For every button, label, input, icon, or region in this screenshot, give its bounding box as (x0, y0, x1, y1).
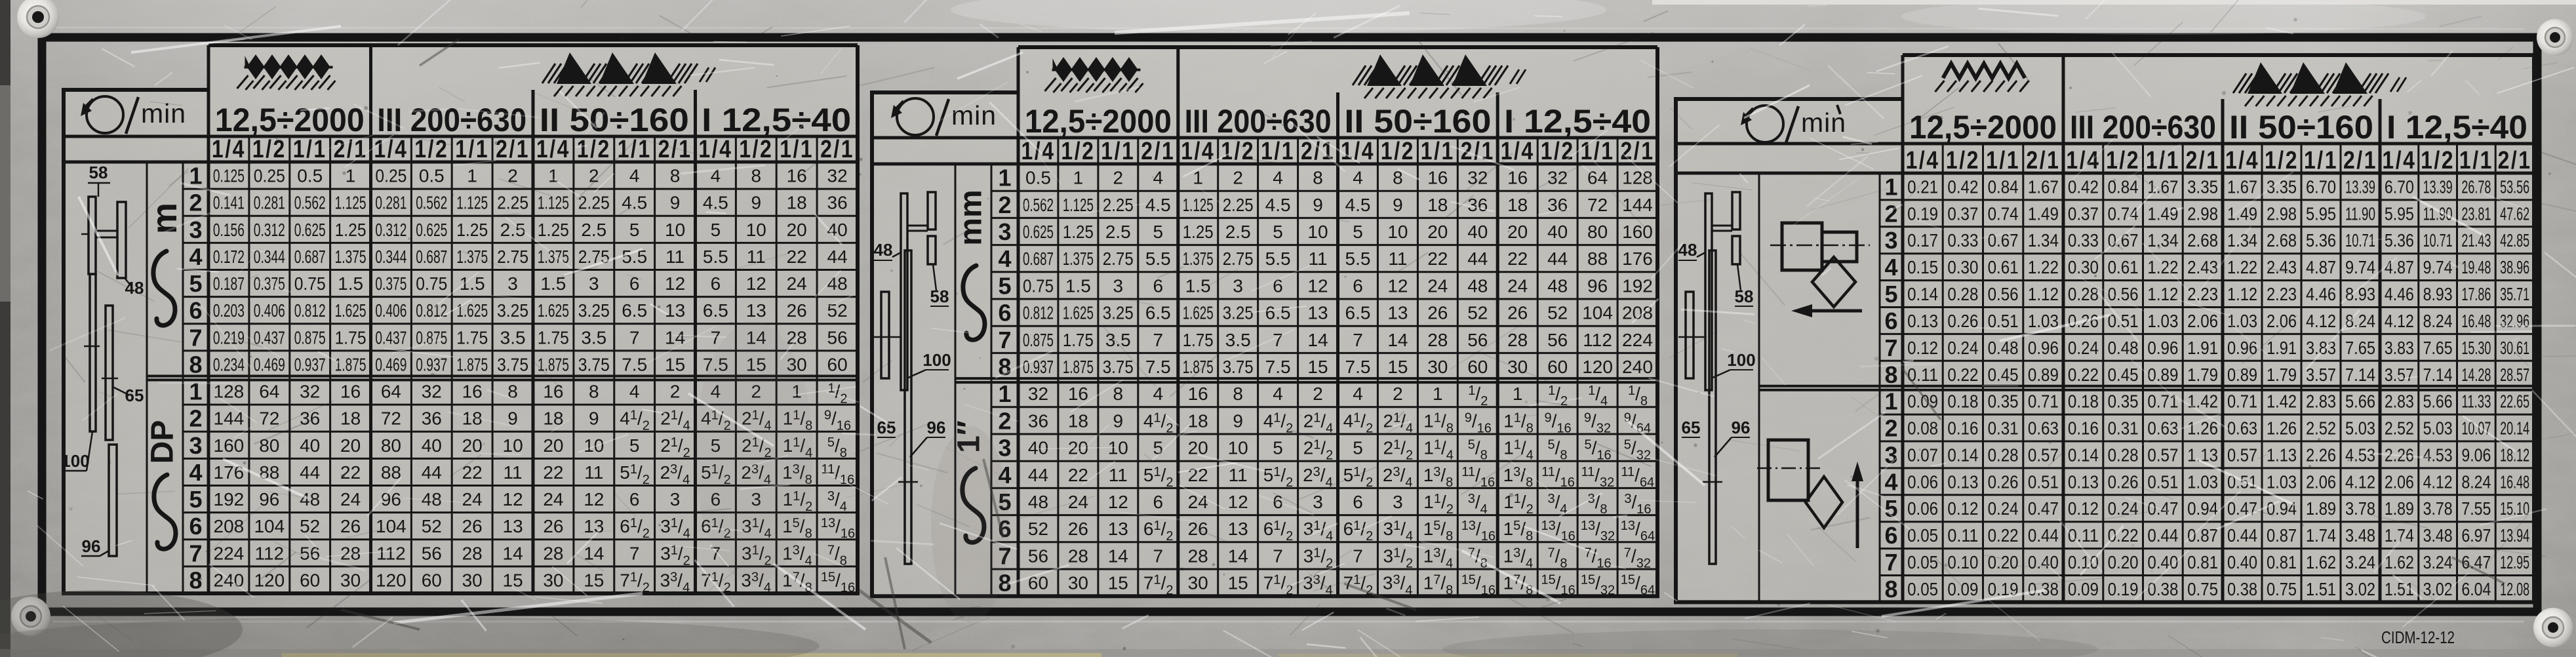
svg-text:22.65: 22.65 (2500, 391, 2529, 412)
svg-text:176: 176 (1622, 249, 1653, 269)
svg-text:2/1: 2/1 (2498, 147, 2532, 174)
svg-text:0.24: 0.24 (2068, 338, 2099, 358)
svg-text:3.48: 3.48 (2345, 525, 2375, 546)
svg-text:5.66: 5.66 (2345, 391, 2375, 412)
svg-text:1.79: 1.79 (2267, 365, 2297, 385)
svg-text:65: 65 (1682, 418, 1701, 437)
svg-text:0.312: 0.312 (254, 220, 285, 240)
svg-text:38.96: 38.96 (2500, 257, 2529, 277)
svg-text:0.375: 0.375 (254, 273, 285, 294)
svg-text:64: 64 (259, 382, 279, 402)
svg-text:20: 20 (787, 220, 807, 240)
svg-text:4: 4 (629, 166, 640, 186)
svg-text:0.37: 0.37 (2068, 203, 2099, 224)
svg-text:0.344: 0.344 (254, 247, 285, 267)
svg-text:44: 44 (1547, 249, 1568, 269)
svg-text:5: 5 (1884, 281, 1897, 308)
svg-text:1.22: 1.22 (2147, 257, 2178, 277)
svg-text:I 12,5÷40: I 12,5÷40 (2387, 109, 2527, 146)
svg-text:7: 7 (189, 324, 202, 351)
svg-text:6.04: 6.04 (2461, 579, 2491, 599)
svg-text:min: min (951, 100, 997, 130)
svg-text:32: 32 (827, 166, 848, 186)
svg-text:26: 26 (1427, 303, 1448, 323)
svg-text:2.06: 2.06 (2385, 471, 2414, 492)
svg-text:24: 24 (787, 273, 807, 294)
svg-text:0.51: 0.51 (2147, 471, 2178, 492)
svg-text:11: 11 (665, 247, 684, 267)
svg-text:9.06: 9.06 (2461, 445, 2491, 466)
svg-text:7: 7 (1273, 330, 1283, 350)
svg-text:1.625: 1.625 (335, 300, 367, 321)
svg-text:II 50÷160: II 50÷160 (540, 102, 689, 138)
svg-text:7: 7 (1353, 546, 1363, 566)
svg-text:160: 160 (214, 435, 245, 456)
svg-text:2.5: 2.5 (1225, 222, 1251, 242)
svg-text:52: 52 (300, 516, 320, 536)
svg-text:0.56: 0.56 (1988, 284, 2019, 304)
svg-text:1.375: 1.375 (538, 247, 569, 267)
svg-text:4.12: 4.12 (2423, 471, 2453, 492)
svg-text:0.28: 0.28 (2068, 284, 2099, 304)
svg-text:20: 20 (340, 435, 361, 456)
svg-text:1.03: 1.03 (2147, 311, 2178, 331)
svg-text:mm: mm (954, 189, 989, 245)
svg-text:0.937: 0.937 (1023, 357, 1054, 377)
svg-text:4.5: 4.5 (622, 193, 647, 213)
svg-text:24: 24 (462, 489, 483, 509)
svg-text:10: 10 (503, 435, 523, 456)
svg-text:5.5: 5.5 (703, 247, 728, 267)
svg-text:2.75: 2.75 (1103, 249, 1134, 269)
svg-text:2.25: 2.25 (578, 193, 610, 213)
svg-text:1.75: 1.75 (1063, 330, 1094, 350)
svg-text:0.26: 0.26 (1988, 471, 2019, 492)
svg-text:0.44: 0.44 (2227, 525, 2257, 546)
svg-text:0.19: 0.19 (2108, 579, 2139, 599)
svg-text:112: 112 (254, 543, 284, 563)
svg-text:0.937: 0.937 (294, 354, 326, 374)
svg-text:47.62: 47.62 (2500, 203, 2529, 224)
svg-text:0.30: 0.30 (1947, 257, 1978, 277)
svg-text:1/4: 1/4 (2066, 147, 2100, 174)
svg-text:9: 9 (670, 193, 681, 213)
svg-text:3.24: 3.24 (2423, 552, 2453, 572)
svg-text:III 200÷630: III 200÷630 (2070, 109, 2216, 146)
svg-text:4.53: 4.53 (2345, 445, 2375, 466)
svg-text:6.5: 6.5 (1265, 303, 1291, 323)
svg-text:2.68: 2.68 (2267, 230, 2297, 250)
svg-text:26: 26 (787, 300, 807, 321)
svg-text:4: 4 (189, 459, 202, 486)
svg-text:3.75: 3.75 (497, 354, 528, 374)
svg-text:44: 44 (1028, 465, 1048, 485)
svg-text:13.39: 13.39 (2345, 176, 2375, 197)
svg-text:2.83: 2.83 (2306, 391, 2336, 412)
svg-text:1.51: 1.51 (2306, 579, 2336, 599)
svg-text:0.18: 0.18 (2068, 391, 2099, 412)
svg-text:7: 7 (189, 540, 202, 567)
svg-text:0.406: 0.406 (375, 300, 406, 321)
svg-text:0.437: 0.437 (375, 327, 406, 348)
svg-text:0.08: 0.08 (1907, 418, 1938, 439)
svg-text:10.71: 10.71 (2423, 230, 2453, 250)
svg-text:120: 120 (376, 570, 406, 590)
svg-text:0.187: 0.187 (213, 273, 245, 294)
svg-text:0.61: 0.61 (2108, 257, 2139, 277)
svg-text:2/1: 2/1 (820, 136, 854, 163)
svg-text:DP: DP (146, 420, 180, 464)
svg-text:3.75: 3.75 (578, 354, 610, 374)
svg-text:1.25: 1.25 (538, 220, 569, 240)
svg-text:14: 14 (1108, 546, 1128, 566)
svg-text:14: 14 (1228, 546, 1248, 566)
svg-text:35.71: 35.71 (2500, 284, 2529, 304)
svg-text:24: 24 (1507, 275, 1528, 296)
svg-text:14: 14 (1387, 330, 1408, 350)
svg-text:9.74: 9.74 (2345, 257, 2375, 277)
svg-text:3: 3 (1113, 275, 1124, 296)
svg-text:0.12: 0.12 (1947, 498, 1978, 519)
svg-text:6: 6 (998, 300, 1011, 327)
svg-text:48: 48 (1028, 492, 1048, 512)
svg-text:1: 1 (998, 165, 1011, 191)
svg-text:0.22: 0.22 (1988, 525, 2019, 546)
svg-text:80: 80 (381, 435, 401, 456)
svg-text:24: 24 (543, 489, 563, 509)
svg-text:14: 14 (1307, 330, 1328, 350)
svg-text:1.375: 1.375 (456, 247, 488, 267)
svg-text:2/1: 2/1 (658, 136, 692, 163)
svg-text:48: 48 (874, 240, 893, 260)
svg-text:1/1: 1/1 (1581, 138, 1615, 165)
svg-text:4: 4 (1273, 168, 1283, 188)
svg-text:13: 13 (746, 300, 766, 321)
svg-text:60: 60 (300, 570, 320, 590)
svg-text:20.14: 20.14 (2500, 418, 2529, 439)
svg-text:30: 30 (1507, 357, 1528, 377)
svg-text:2.98: 2.98 (2187, 203, 2218, 224)
svg-text:2/1: 2/1 (1141, 138, 1175, 165)
svg-text:7: 7 (1273, 546, 1283, 566)
svg-text:0.406: 0.406 (254, 300, 285, 321)
svg-text:96: 96 (1587, 275, 1608, 296)
svg-text:208: 208 (1622, 303, 1653, 323)
svg-text:0.625: 0.625 (294, 220, 326, 240)
svg-text:32: 32 (1467, 168, 1488, 188)
svg-text:10: 10 (584, 435, 604, 456)
svg-text:1/1: 1/1 (455, 136, 489, 163)
svg-text:1.75: 1.75 (1183, 330, 1214, 350)
svg-text:2: 2 (189, 189, 202, 216)
svg-text:5.95: 5.95 (2385, 203, 2414, 224)
svg-text:2.06: 2.06 (2267, 311, 2297, 331)
svg-text:1.89: 1.89 (2306, 498, 2336, 519)
svg-text:28: 28 (1507, 330, 1528, 350)
svg-text:44: 44 (300, 462, 320, 483)
svg-text:0.22: 0.22 (2068, 365, 2099, 385)
svg-text:4.5: 4.5 (1345, 195, 1371, 215)
svg-text:0.562: 0.562 (294, 193, 326, 213)
svg-text:40: 40 (1547, 222, 1568, 242)
svg-text:21.43: 21.43 (2461, 230, 2491, 250)
svg-text:1.625: 1.625 (1063, 303, 1094, 323)
svg-text:0.937: 0.937 (416, 354, 447, 374)
svg-text:28: 28 (543, 543, 563, 563)
svg-text:11.90: 11.90 (2345, 203, 2375, 224)
svg-text:2: 2 (1884, 415, 1897, 442)
svg-text:1.49: 1.49 (2147, 203, 2178, 224)
svg-text:0.25: 0.25 (254, 166, 285, 186)
svg-text:1.75: 1.75 (538, 327, 569, 348)
svg-text:96: 96 (927, 418, 946, 437)
svg-text:4.46: 4.46 (2385, 284, 2414, 304)
svg-text:15: 15 (1228, 573, 1248, 593)
svg-text:30: 30 (1188, 573, 1208, 593)
svg-text:1.375: 1.375 (335, 247, 367, 267)
svg-text:0.47: 0.47 (2147, 498, 2178, 519)
svg-text:0.19: 0.19 (1907, 203, 1938, 224)
svg-text:0.75: 0.75 (2267, 579, 2297, 599)
svg-text:0.203: 0.203 (213, 300, 245, 321)
svg-text:3.25: 3.25 (1103, 303, 1134, 323)
svg-text:0.875: 0.875 (1023, 330, 1054, 350)
svg-text:0.96: 0.96 (2028, 338, 2059, 358)
svg-text:5: 5 (189, 270, 202, 297)
svg-text:0.20: 0.20 (2108, 552, 2139, 572)
svg-text:1.25: 1.25 (1063, 222, 1094, 242)
svg-text:7: 7 (1153, 546, 1164, 566)
svg-text:64: 64 (381, 382, 401, 402)
svg-text:0.89: 0.89 (2147, 365, 2178, 385)
svg-text:16: 16 (1188, 384, 1208, 404)
svg-text:20: 20 (462, 435, 483, 456)
svg-text:3.75: 3.75 (1103, 357, 1134, 377)
svg-text:0.57: 0.57 (2147, 445, 2178, 466)
svg-text:7: 7 (1884, 549, 1897, 576)
svg-text:28: 28 (1068, 546, 1088, 566)
svg-text:1/4: 1/4 (1181, 138, 1215, 165)
svg-text:0.469: 0.469 (375, 354, 406, 374)
svg-text:0.24: 0.24 (1988, 498, 2019, 519)
svg-text:56: 56 (1547, 330, 1568, 350)
svg-text:26: 26 (462, 516, 483, 536)
svg-text:II 50÷160: II 50÷160 (2229, 109, 2373, 146)
svg-text:2: 2 (1233, 168, 1243, 188)
svg-text:4: 4 (1884, 254, 1897, 281)
svg-text:2.25: 2.25 (1223, 195, 1254, 215)
svg-text:0.156: 0.156 (213, 220, 245, 240)
svg-text:3: 3 (1884, 442, 1897, 469)
svg-text:1.67: 1.67 (2028, 176, 2059, 197)
svg-text:0.31: 0.31 (2108, 418, 2139, 439)
svg-text:0.44: 0.44 (2147, 525, 2178, 546)
svg-text:20: 20 (1507, 222, 1528, 242)
svg-text:0.57: 0.57 (2227, 445, 2257, 466)
svg-text:6: 6 (189, 513, 202, 540)
svg-text:22: 22 (1427, 249, 1448, 269)
svg-text:1/4: 1/4 (1021, 138, 1056, 165)
svg-text:0.45: 0.45 (2108, 365, 2139, 385)
svg-text:28: 28 (787, 327, 807, 348)
svg-text:3: 3 (1313, 492, 1323, 512)
svg-text:4.12: 4.12 (2345, 471, 2375, 492)
svg-text:1.89: 1.89 (2385, 498, 2414, 519)
svg-text:15.30: 15.30 (2461, 338, 2491, 358)
svg-text:10.07: 10.07 (2461, 418, 2491, 439)
svg-text:0.5: 0.5 (1025, 168, 1051, 188)
svg-text:56: 56 (827, 327, 848, 348)
svg-text:30.61: 30.61 (2500, 338, 2529, 358)
svg-text:52: 52 (827, 300, 848, 321)
svg-text:24: 24 (1427, 275, 1448, 296)
svg-text:0.05: 0.05 (1907, 525, 1938, 546)
svg-text:3: 3 (670, 489, 681, 509)
svg-text:100: 100 (1727, 350, 1755, 370)
svg-text:12,5÷2000: 12,5÷2000 (1909, 109, 2057, 146)
svg-text:3.48: 3.48 (2423, 525, 2453, 546)
svg-text:16: 16 (1427, 168, 1448, 188)
svg-text:13: 13 (1228, 519, 1248, 539)
svg-text:1.12: 1.12 (2147, 284, 2178, 304)
svg-text:0.42: 0.42 (1947, 176, 1978, 197)
svg-text:0.33: 0.33 (1947, 230, 1978, 250)
svg-text:53.56: 53.56 (2500, 176, 2529, 197)
svg-text:1/4: 1/4 (698, 136, 732, 163)
svg-text:1.34: 1.34 (2227, 230, 2257, 250)
svg-text:0.67: 0.67 (1988, 230, 2019, 250)
svg-text:3.83: 3.83 (2385, 338, 2414, 358)
svg-text:1/2: 1/2 (2106, 147, 2140, 174)
svg-text:1/2: 1/2 (2421, 147, 2455, 174)
svg-text:2/1: 2/1 (334, 136, 368, 163)
svg-text:5: 5 (1273, 222, 1283, 242)
svg-text:1.49: 1.49 (2227, 203, 2257, 224)
svg-text:II 50÷160: II 50÷160 (1344, 103, 1491, 140)
svg-text:0.71: 0.71 (2147, 391, 2178, 412)
svg-text:4.53: 4.53 (2423, 445, 2453, 466)
svg-text:5: 5 (1153, 222, 1164, 242)
svg-text:1/2: 1/2 (739, 136, 773, 163)
svg-text:15: 15 (1108, 573, 1128, 593)
svg-text:23.81: 23.81 (2461, 203, 2491, 224)
svg-text:32.96: 32.96 (2500, 311, 2529, 331)
svg-text:1/4: 1/4 (2382, 147, 2416, 174)
svg-text:2.52: 2.52 (2385, 418, 2414, 439)
svg-text:1.34: 1.34 (2028, 230, 2059, 250)
svg-text:0.48: 0.48 (2108, 338, 2139, 358)
svg-text:1.12: 1.12 (2028, 284, 2059, 304)
svg-text:0.45: 0.45 (1988, 365, 2019, 385)
svg-text:44: 44 (422, 462, 442, 483)
svg-text:0.14: 0.14 (2068, 445, 2099, 466)
svg-text:18: 18 (1507, 195, 1528, 215)
svg-text:3: 3 (998, 435, 1011, 462)
svg-text:192: 192 (1622, 275, 1653, 296)
svg-text:1.22: 1.22 (2028, 257, 2059, 277)
svg-text:36: 36 (1547, 195, 1568, 215)
svg-text:4.5: 4.5 (703, 193, 728, 213)
svg-text:2.98: 2.98 (2267, 203, 2297, 224)
svg-text:2: 2 (1113, 168, 1124, 188)
svg-text:2/1: 2/1 (1621, 138, 1655, 165)
svg-text:7.14: 7.14 (2345, 365, 2375, 385)
svg-text:1.125: 1.125 (456, 193, 488, 213)
svg-text:96: 96 (259, 489, 279, 509)
svg-text:5: 5 (189, 486, 202, 513)
svg-text:1/1: 1/1 (293, 136, 327, 163)
svg-text:15: 15 (584, 570, 604, 590)
svg-text:0.96: 0.96 (2147, 338, 2178, 358)
svg-text:2.83: 2.83 (2385, 391, 2414, 412)
svg-text:3.5: 3.5 (500, 327, 526, 348)
svg-text:0.89: 0.89 (2028, 365, 2059, 385)
svg-text:1.875: 1.875 (1183, 357, 1214, 377)
svg-text:10: 10 (746, 220, 766, 240)
svg-text:1: 1 (1433, 384, 1443, 404)
svg-text:0.33: 0.33 (2068, 230, 2099, 250)
svg-text:1/4: 1/4 (1906, 147, 1940, 174)
svg-text:1/1: 1/1 (1421, 138, 1455, 165)
svg-text:26: 26 (340, 516, 361, 536)
svg-text:0.81: 0.81 (2267, 552, 2297, 572)
svg-text:0.35: 0.35 (2108, 391, 2139, 412)
svg-text:3: 3 (1393, 492, 1403, 512)
svg-text:0.71: 0.71 (2028, 391, 2059, 412)
svg-text:5.36: 5.36 (2306, 230, 2336, 250)
svg-text:24: 24 (340, 489, 361, 509)
svg-text:17.86: 17.86 (2461, 284, 2491, 304)
svg-text:13: 13 (503, 516, 523, 536)
svg-text:22: 22 (340, 462, 361, 483)
svg-text:2: 2 (1884, 200, 1897, 227)
svg-text:12: 12 (665, 273, 685, 294)
svg-text:1/1: 1/1 (2459, 147, 2493, 174)
svg-text:104: 104 (376, 516, 406, 536)
svg-text:30: 30 (1068, 573, 1088, 593)
svg-text:9: 9 (589, 408, 599, 429)
svg-text:48: 48 (827, 273, 848, 294)
svg-text:2.52: 2.52 (2306, 418, 2336, 439)
svg-text:7.5: 7.5 (1145, 357, 1171, 377)
svg-text:5.03: 5.03 (2423, 418, 2453, 439)
svg-text:0.67: 0.67 (2108, 230, 2139, 250)
svg-text:2/1: 2/1 (2186, 147, 2220, 174)
svg-text:1.12: 1.12 (2227, 284, 2257, 304)
svg-text:100: 100 (61, 451, 89, 471)
svg-text:1: 1 (548, 166, 559, 186)
svg-text:12: 12 (1307, 275, 1328, 296)
svg-text:4: 4 (1153, 168, 1164, 188)
svg-text:18: 18 (1188, 410, 1208, 431)
svg-text:1/2: 1/2 (1946, 147, 1980, 174)
svg-text:0.5: 0.5 (419, 166, 445, 186)
svg-text:1.125: 1.125 (538, 193, 569, 213)
svg-text:48: 48 (1467, 275, 1488, 296)
svg-text:56: 56 (300, 543, 320, 563)
svg-text:0.61: 0.61 (1988, 257, 2019, 277)
svg-text:0.25: 0.25 (375, 166, 406, 186)
svg-text:0.44: 0.44 (2028, 525, 2059, 546)
svg-text:6.5: 6.5 (1145, 303, 1171, 323)
svg-text:3.78: 3.78 (2345, 498, 2375, 519)
svg-text:0.35: 0.35 (1988, 391, 2019, 412)
svg-text:1.26: 1.26 (2267, 418, 2297, 439)
svg-text:0.06: 0.06 (1907, 471, 1938, 492)
svg-text:2: 2 (998, 407, 1011, 434)
svg-text:20: 20 (543, 435, 563, 456)
svg-text:8: 8 (1313, 168, 1323, 188)
